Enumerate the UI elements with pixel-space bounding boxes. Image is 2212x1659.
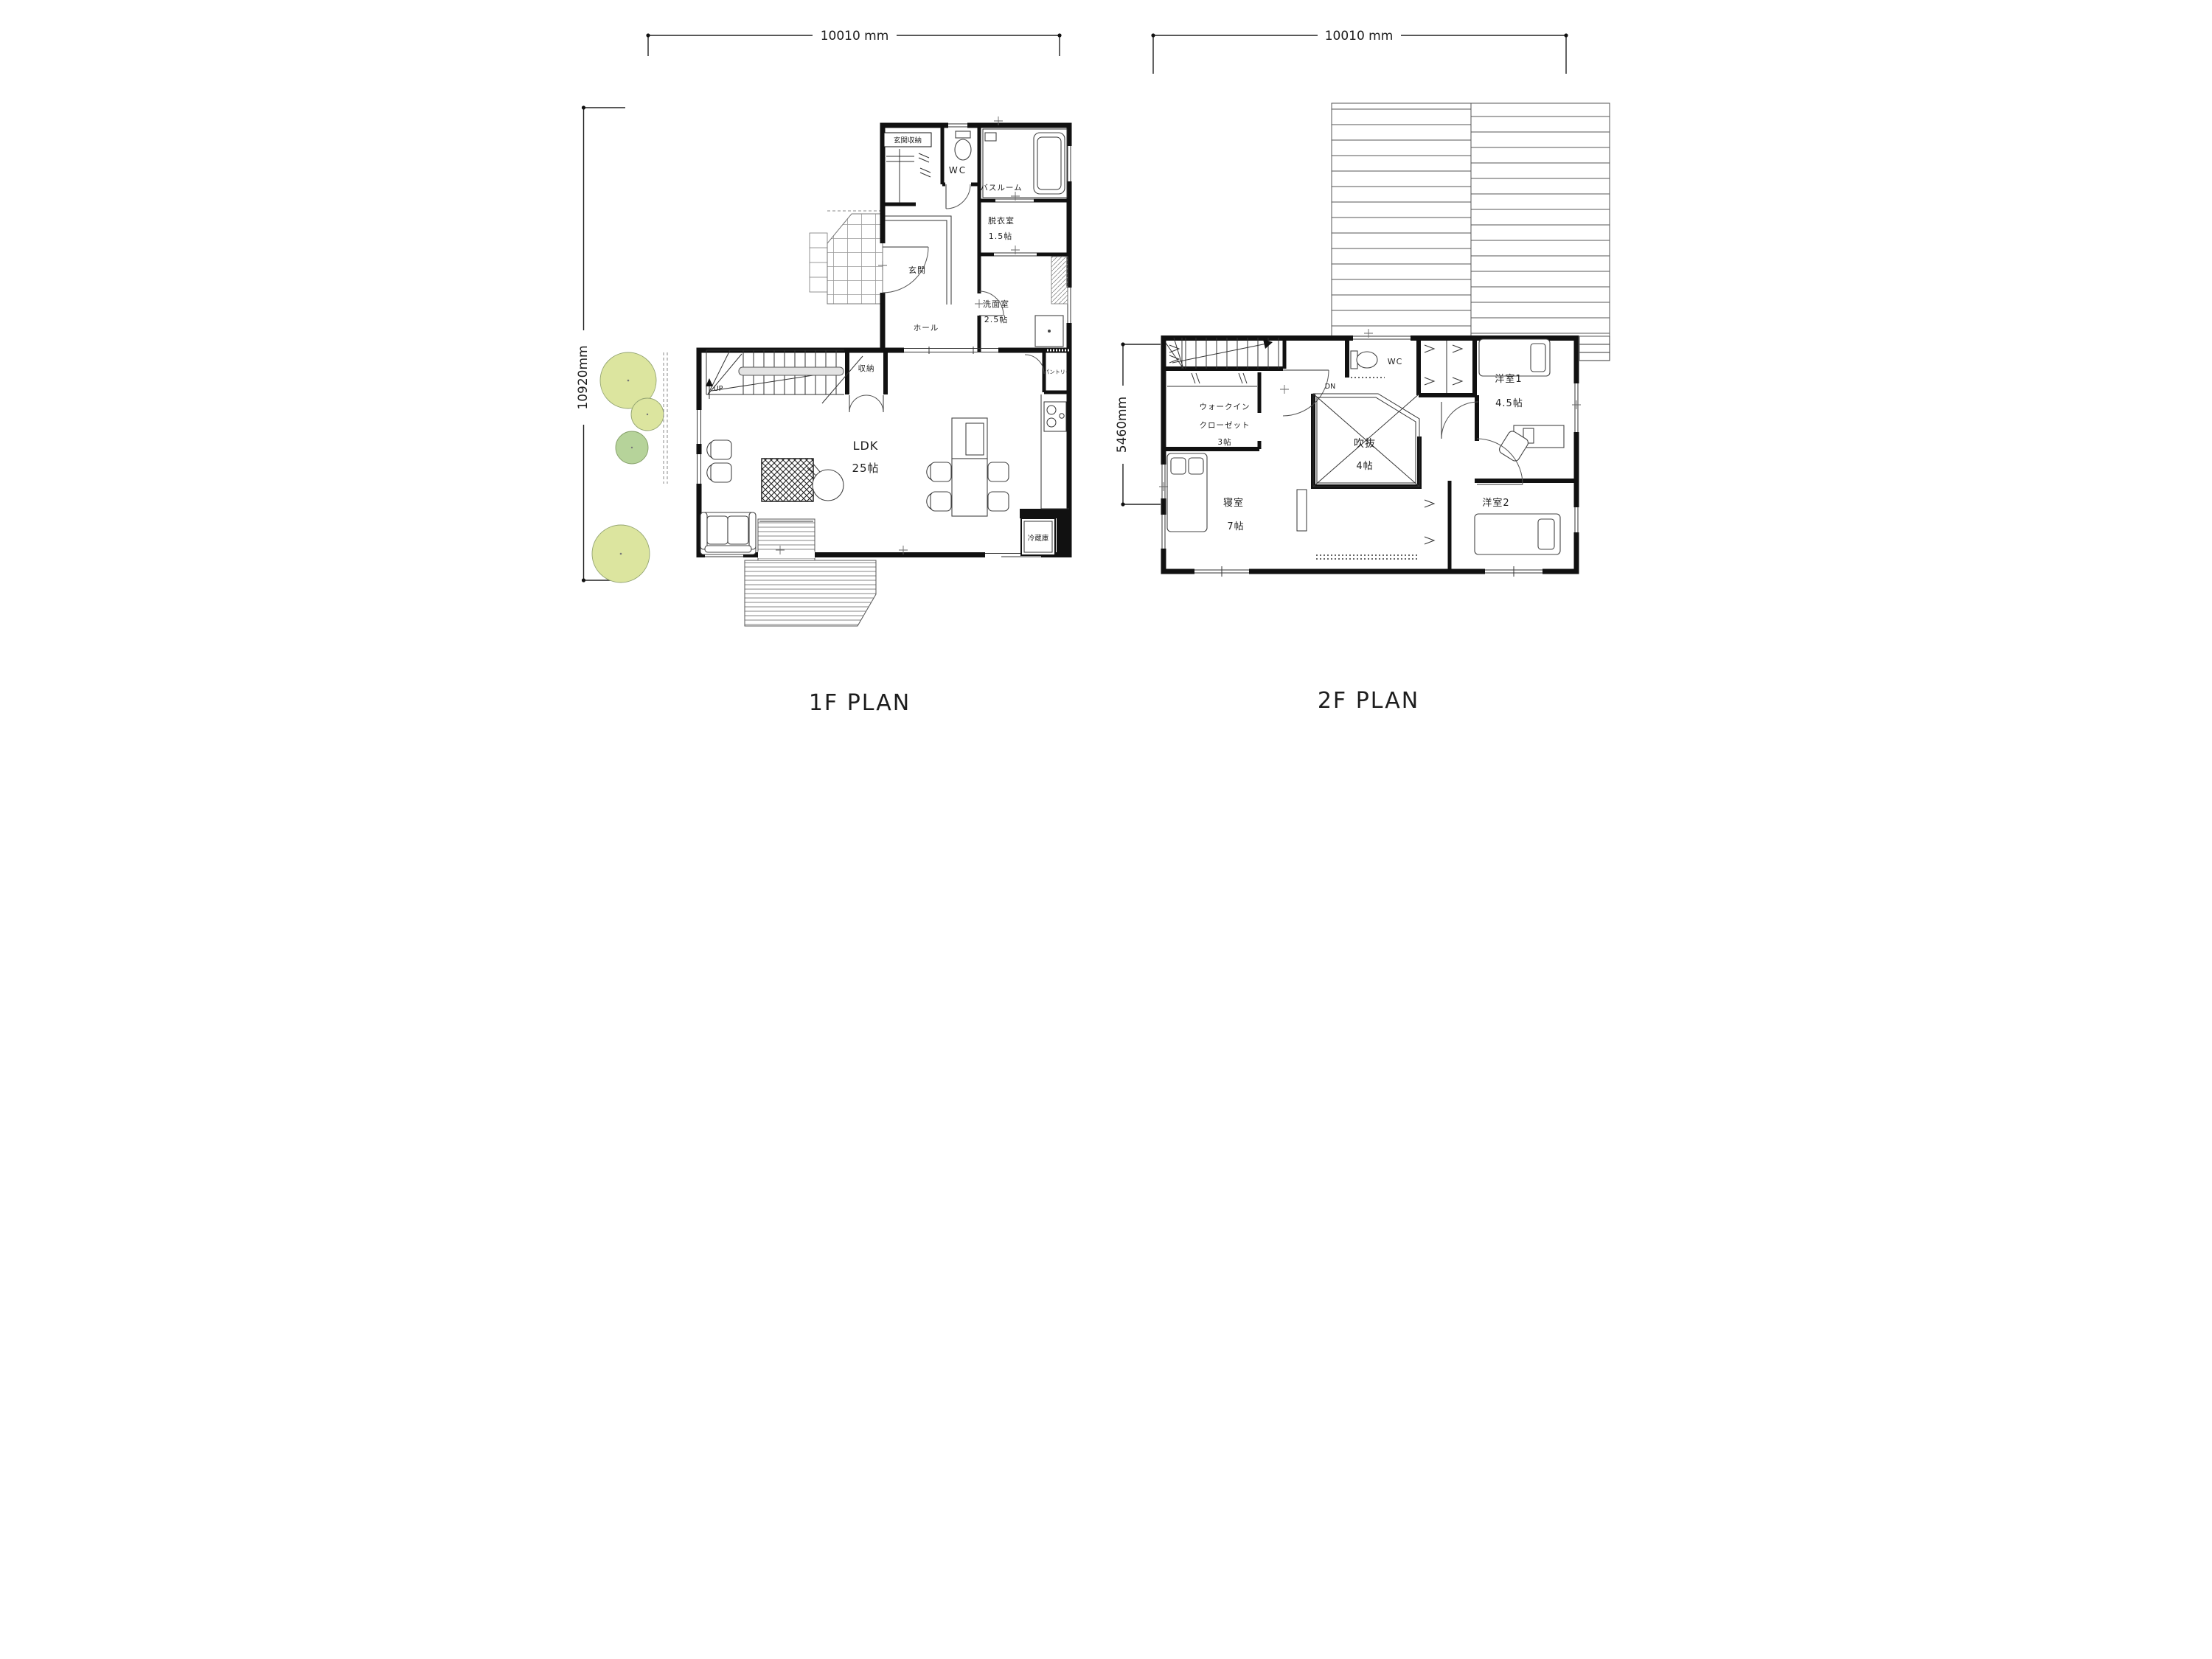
- label-hall: ホール: [914, 324, 939, 333]
- label-storage: 収納: [858, 364, 875, 373]
- garden-trees: [592, 352, 664, 582]
- label-wic-2: クローゼット: [1200, 421, 1251, 430]
- label-bedroom: 寝室: [1223, 497, 1244, 509]
- label-atrium-size: 4帖: [1356, 461, 1373, 472]
- bathroom: バスルーム: [980, 129, 1067, 202]
- chair-icon: [988, 462, 1009, 481]
- pantry: パントリー: [1025, 355, 1071, 375]
- dim-1f-width-label: 10010 mm: [821, 29, 889, 44]
- label-pantry: パントリー: [1044, 369, 1071, 375]
- label-wic-size: 3帖: [1217, 437, 1231, 447]
- label-dressing-size: 1.5帖: [989, 232, 1013, 241]
- label-atrium: 吹抜: [1354, 438, 1376, 450]
- entrance-storage-room: 玄関収納: [884, 133, 931, 203]
- refrigerator: 冷蔵庫: [1021, 518, 1055, 555]
- label-entrance: 玄関: [908, 265, 926, 275]
- title-1f-plan: 1F PLAN: [809, 690, 911, 716]
- label-stairs-up: UP: [714, 385, 723, 393]
- label-washroom-size: 2.5帖: [984, 315, 1009, 324]
- chair-icon: [988, 492, 1009, 511]
- floor2-plan: DN ウォークイン クローゼット 3帖 寝室 7帖: [1159, 103, 1610, 577]
- label-bathroom: バスルーム: [980, 184, 1022, 192]
- label-ldk: LDK: [853, 439, 879, 453]
- shower-icon: [985, 133, 996, 141]
- washroom: 洗面室 2.5帖: [979, 257, 1068, 347]
- dining-table-icon: [952, 459, 987, 516]
- site-boundary-dashed: [664, 352, 667, 484]
- label-wic-1: ウォークイン: [1200, 403, 1251, 411]
- label-washroom: 洗面室: [983, 299, 1009, 309]
- counter-icon: [1051, 257, 1068, 304]
- entrance-porch: [810, 211, 883, 304]
- bathtub-icon: [1034, 133, 1065, 194]
- label-room2: 洋室2: [1482, 497, 1509, 509]
- chair-icon: [931, 462, 951, 481]
- label-room1: 洋室1: [1495, 373, 1522, 385]
- armchair-icon: [711, 463, 731, 482]
- wood-deck: [745, 519, 876, 626]
- floor1-plan: UP 収納 玄関収納 WC: [696, 116, 1073, 626]
- dim-2f-width-label: 10010 mm: [1325, 29, 1394, 44]
- roof: [1332, 103, 1610, 361]
- label-room1-size: 4.5帖: [1495, 398, 1523, 409]
- label-entrance-storage: 玄関収納: [894, 136, 922, 145]
- entrance-room: 玄関: [883, 216, 951, 305]
- toilet-icon: [1357, 352, 1377, 368]
- label-ldk-size: 25帖: [852, 462, 879, 475]
- label-wc-1f: WC: [949, 165, 967, 175]
- kitchen-island-icon: [952, 418, 987, 459]
- stove-icon: [1044, 402, 1066, 431]
- label-bedroom-size: 7帖: [1227, 521, 1244, 532]
- label-wc-2f: WC: [1388, 357, 1403, 366]
- dimension-1f-width: 10010 mm: [646, 29, 1061, 56]
- chair-icon: [931, 492, 951, 511]
- floor-plan-page: 10010 mm 10010 mm 10920mm 5460mm: [553, 0, 1659, 829]
- label-dressing: 脱衣室: [988, 215, 1015, 226]
- dim-1f-height-label: 10920mm: [576, 345, 591, 409]
- dim-2f-height-label: 5460mm: [1115, 397, 1130, 453]
- wc-room-1f: WC: [946, 131, 971, 209]
- stairs-1f: UP: [706, 350, 863, 403]
- floor-plan-image: 10010 mm 10010 mm 10920mm 5460mm: [553, 0, 1659, 829]
- dimension-2f-width: 10010 mm: [1151, 29, 1568, 74]
- toilet-icon: [955, 139, 971, 160]
- label-refrigerator: 冷蔵庫: [1028, 534, 1049, 543]
- toilet-tank-icon: [956, 131, 970, 138]
- dimension-2f-height: 5460mm: [1115, 342, 1165, 506]
- storage-closet: 収納: [849, 364, 883, 412]
- round-chair-icon: [813, 470, 844, 501]
- title-2f-plan: 2F PLAN: [1318, 688, 1419, 714]
- coffee-table-icon: [762, 459, 813, 501]
- dimension-1f-height: 10920mm: [576, 105, 625, 582]
- dining-set: [927, 459, 1009, 516]
- armchair-icon: [711, 440, 731, 459]
